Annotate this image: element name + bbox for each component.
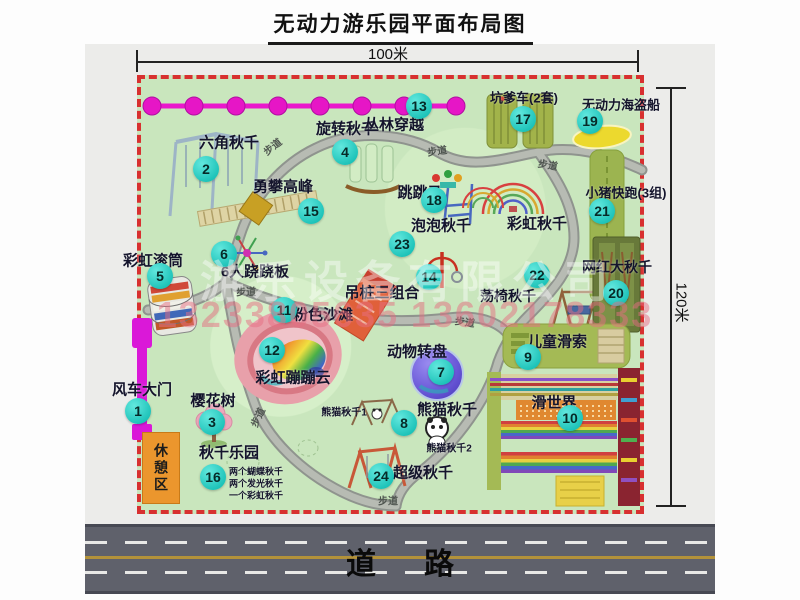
path-label-1: 步道 <box>426 141 448 159</box>
item-badge-22: 22 <box>524 262 550 288</box>
extra-label-2: 熊猫秋千2 <box>426 440 472 455</box>
item-badge-15: 15 <box>298 198 324 224</box>
item-badge-1: 1 <box>125 398 151 424</box>
road: 道路 <box>85 524 715 594</box>
item-label-11: 粉色沙滩 <box>293 304 353 325</box>
page-title: 无动力游乐园平面布局图 <box>0 8 800 45</box>
item-label-24: 超级秋千 <box>393 462 453 483</box>
item-badge-2: 2 <box>193 156 219 182</box>
item-badge-17: 17 <box>510 106 536 132</box>
item-badge-3: 3 <box>199 409 225 435</box>
item-label-14: 吊桩三组合 <box>344 282 419 303</box>
item-label-1: 风车大门 <box>112 379 172 400</box>
item-label-16: 秋千乐园 <box>199 442 259 463</box>
road-label: 道路 <box>85 539 715 583</box>
item-badge-16: 16 <box>200 464 226 490</box>
dimension-label-top: 100米 <box>368 43 408 64</box>
item-badge-9: 9 <box>515 344 541 370</box>
item-badge-23: 23 <box>389 231 415 257</box>
item-label-23: 泡泡秋千 <box>411 215 471 236</box>
item-badge-8: 8 <box>391 410 417 436</box>
extra-label-5: 一个彩虹秋千 <box>229 489 283 502</box>
item-badge-12: 12 <box>259 337 285 363</box>
item-badge-10: 10 <box>557 405 583 431</box>
dimension-tick-top-left <box>136 50 138 72</box>
item-label-3: 樱花树 <box>190 390 235 411</box>
item-badge-20: 20 <box>603 280 629 306</box>
extra-label-0: 彩虹秋千 <box>507 213 567 234</box>
dimension-tick-right-top <box>656 87 686 89</box>
item-badge-24: 24 <box>368 463 394 489</box>
path-label-3: 步道 <box>236 284 256 299</box>
stage: 无动力游乐园平面布局图 100米 120米 <box>0 0 800 600</box>
extra-label-1: 熊猫秋千1 <box>321 404 367 419</box>
path-label-2: 步道 <box>537 155 559 173</box>
item-badge-21: 21 <box>589 198 615 224</box>
item-label-12: 彩虹蹦蹦云 <box>255 367 330 388</box>
item-badge-19: 19 <box>577 108 603 134</box>
dimension-label-right: 120米 <box>672 282 693 322</box>
item-badge-11: 11 <box>271 297 297 323</box>
item-label-20: 网红大秋千 <box>582 257 652 277</box>
item-badge-4: 4 <box>332 139 358 165</box>
item-label-17: 坑爹车(2套) <box>490 88 558 107</box>
rest-area: 休憩区 <box>142 432 180 504</box>
item-label-22: 荡椅秋千 <box>480 286 536 306</box>
dimension-tick-top-right <box>637 50 639 72</box>
item-badge-14: 14 <box>416 264 442 290</box>
path-label-6: 步道 <box>378 493 398 508</box>
item-badge-6: 6 <box>211 241 237 267</box>
item-badge-5: 5 <box>147 263 173 289</box>
path-label-4: 步道 <box>454 312 476 330</box>
slide-world-icon <box>487 368 640 506</box>
item-label-8: 熊猫秋千 <box>417 399 477 420</box>
item-badge-7: 7 <box>428 359 454 385</box>
dimension-tick-right-bottom <box>656 505 686 507</box>
item-label-15: 勇攀高峰 <box>253 176 313 197</box>
item-badge-13: 13 <box>406 93 432 119</box>
item-badge-18: 18 <box>421 187 447 213</box>
rainbow-swing-icon <box>463 184 543 214</box>
item-label-2: 六角秋千 <box>199 132 259 153</box>
page-title-text: 无动力游乐园平面布局图 <box>268 8 533 45</box>
